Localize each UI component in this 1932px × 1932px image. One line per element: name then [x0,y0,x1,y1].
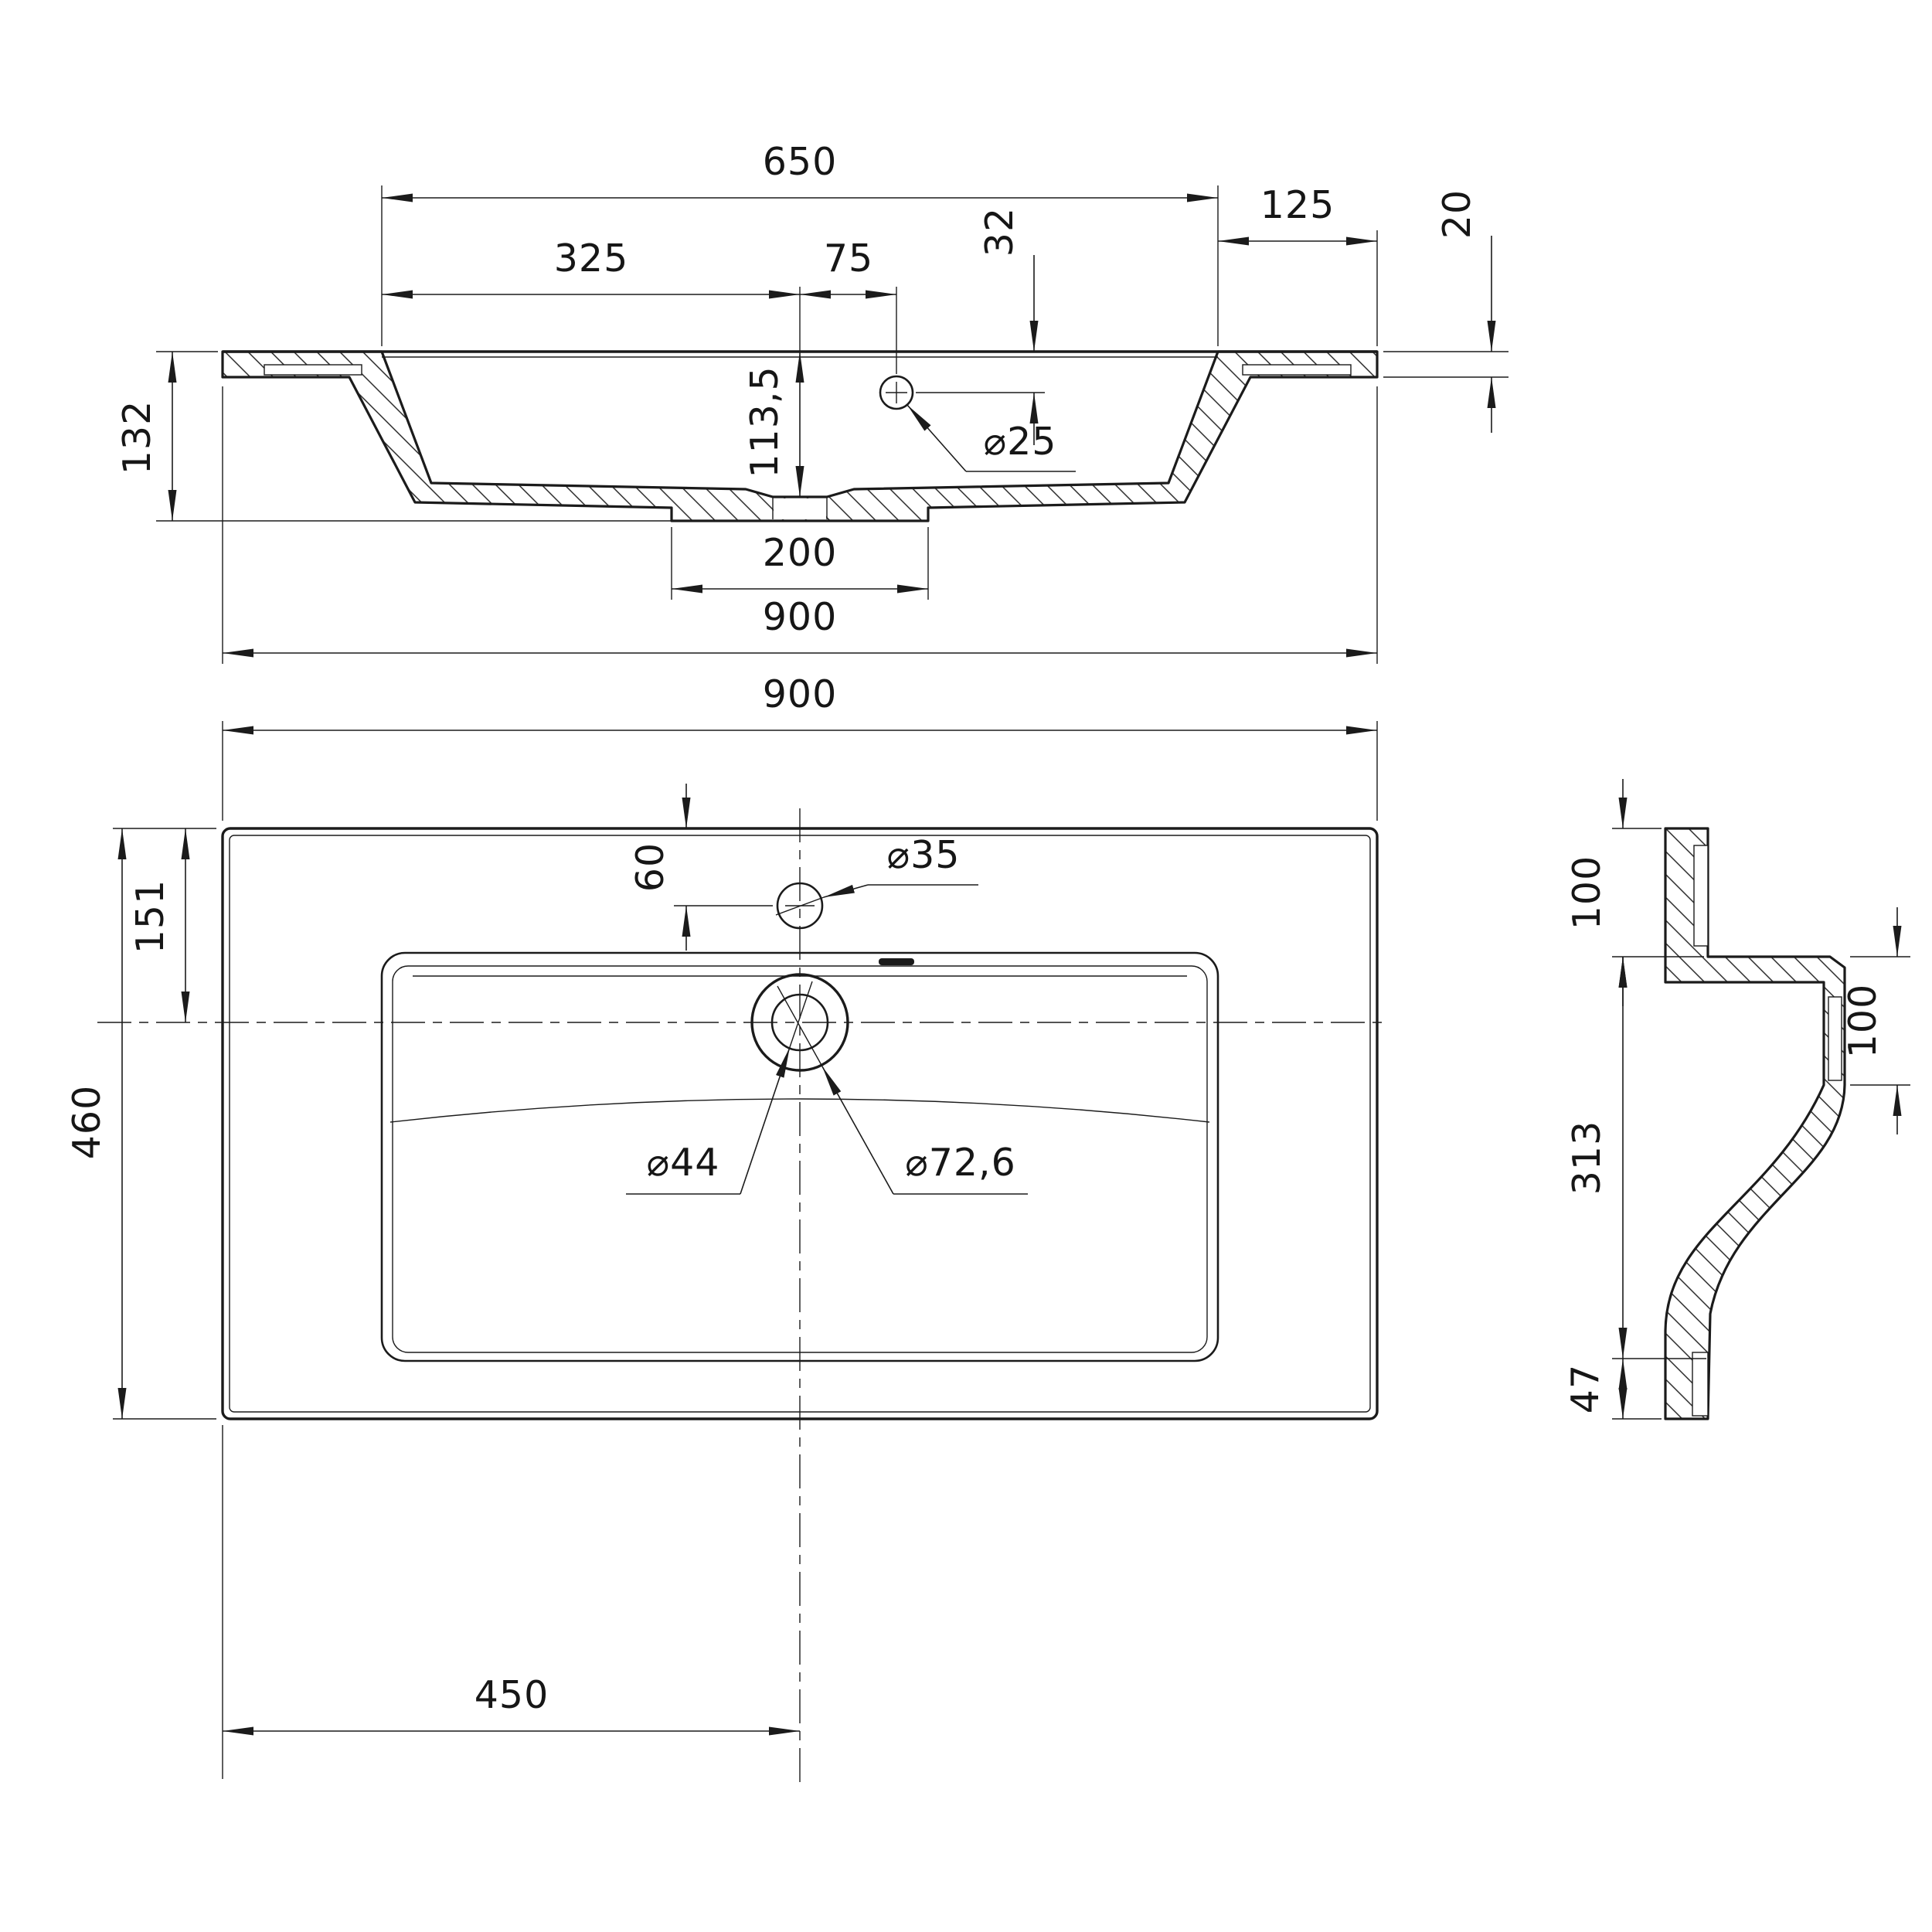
dim-label-125: 125 [1260,183,1335,227]
dim-label-325: 325 [554,236,629,281]
dim-label-450: 450 [474,1673,549,1717]
dim-label-d72-6: ⌀72,6 [905,1141,1016,1185]
dim-label-32: 32 [978,207,1022,257]
dim-label-900-section: 900 [763,595,838,639]
dim-label-313: 313 [1565,1121,1609,1196]
section-left-rebate [264,365,362,375]
dim-label-100-top: 100 [1565,855,1609,930]
dim-label-460: 460 [65,1085,109,1160]
section-right-rebate [1243,365,1351,375]
dim-label-113-5: 113,5 [743,366,787,478]
dim-label-d44: ⌀44 [647,1141,720,1185]
dim-label-100-right: 100 [1841,984,1885,1059]
dim-label-20: 20 [1435,189,1479,239]
side-front-rebate [1828,997,1842,1080]
dim-label-900-plan: 900 [763,672,838,716]
dim-label-200: 200 [763,531,838,575]
section-drain-hole [774,498,826,519]
dim-label-60: 60 [628,842,672,892]
washbasin-technical-drawing: 650 125 325 75 32 113,5 [0,0,1932,1932]
dim-label-151: 151 [128,879,172,954]
dim-label-d35: ⌀35 [887,833,961,877]
dim-label-650: 650 [763,140,838,184]
side-back-rebate [1694,845,1708,946]
side-bottom-rebate [1692,1352,1708,1416]
dim-label-47: 47 [1563,1364,1607,1413]
dim-label-75: 75 [824,236,873,281]
overflow-slot [879,958,914,965]
dim-label-d25: ⌀25 [984,420,1057,464]
dim-label-132: 132 [115,400,159,475]
